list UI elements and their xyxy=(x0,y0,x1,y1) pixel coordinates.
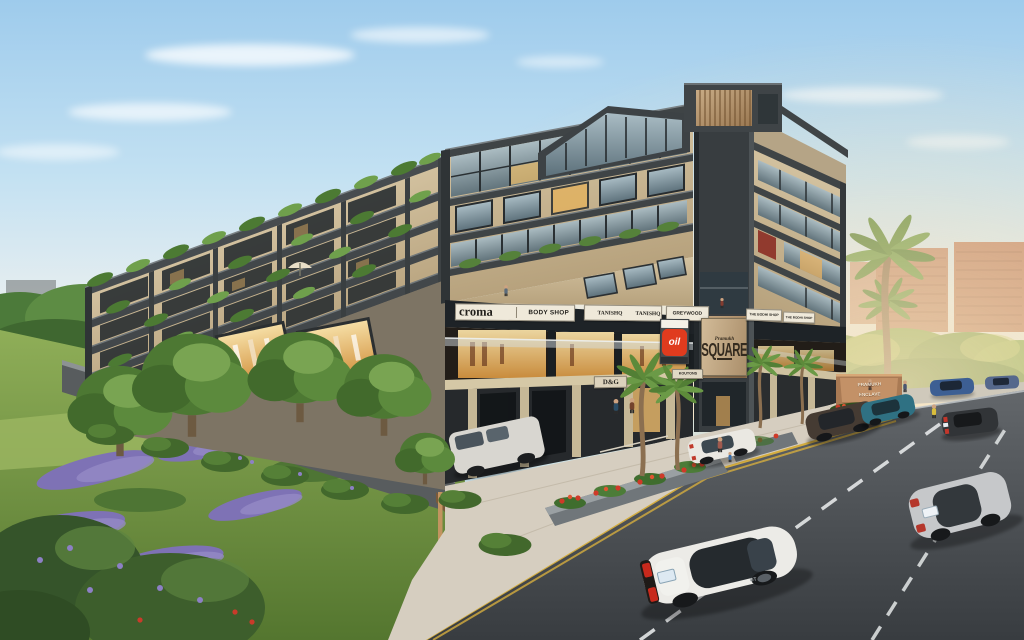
tower-balcony xyxy=(700,272,748,314)
architectural-rendering: croma BODY SHOP TANISHQ TANISHQ GREYWOOD… xyxy=(0,0,1024,640)
distant-second-car xyxy=(985,375,1020,390)
scene-canvas xyxy=(0,0,1024,640)
tower-sign-panel xyxy=(701,316,747,378)
